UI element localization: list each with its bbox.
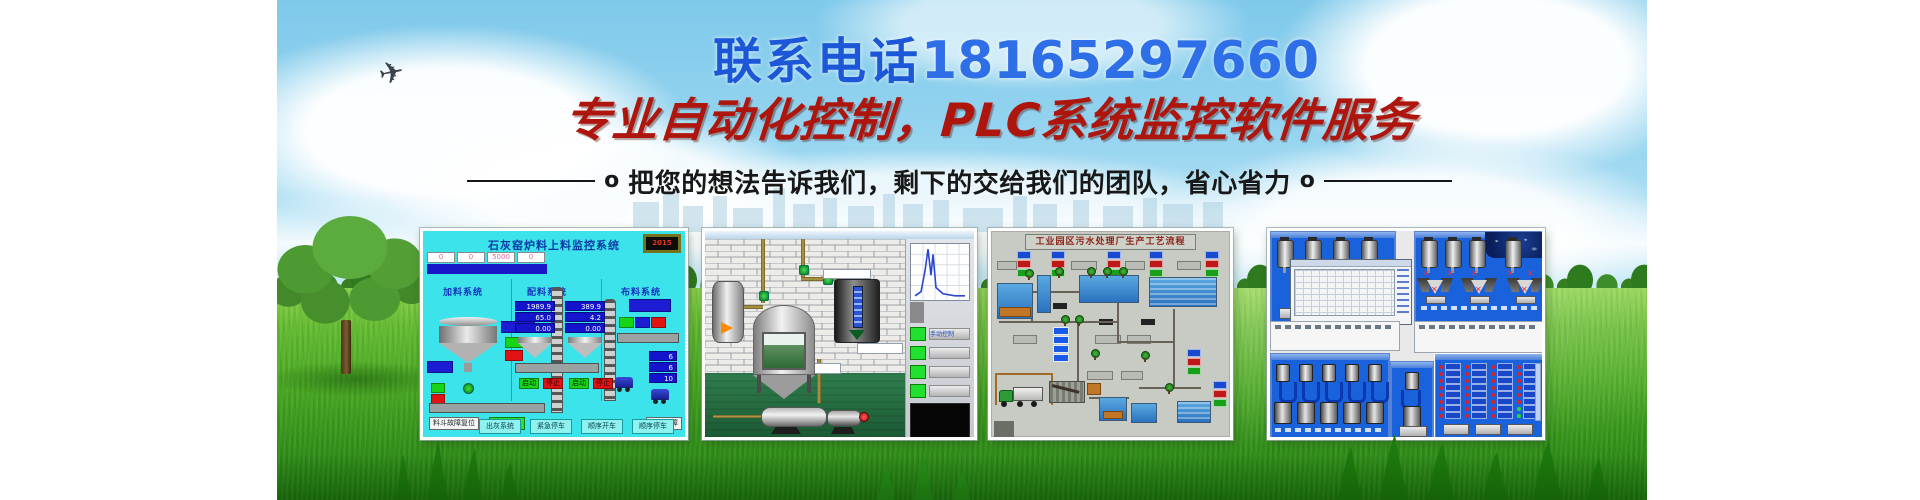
s1-label-box [427, 361, 453, 373]
tank-icon [1505, 240, 1522, 268]
phone-label: 联系电话 [713, 33, 921, 90]
s4-white-table [1414, 321, 1542, 353]
s1-value-cells: 0 0 5000 0 [427, 252, 545, 263]
tagline-dash-right [1324, 180, 1452, 182]
s1-indicator [651, 317, 666, 328]
s3-title: 工业园区污水处理厂生产工艺流程 [1025, 234, 1196, 250]
tree-icon [1103, 267, 1112, 276]
line-tag [1053, 303, 1067, 309]
s1-section-distribution: 布料系统 [621, 285, 661, 298]
param-column [1439, 363, 1461, 419]
s1-indicator [635, 317, 650, 328]
s2-wall-label [823, 269, 871, 279]
screenshot-mixer-hmi: 手动控制 [702, 228, 977, 440]
valve-icon [1141, 351, 1150, 360]
s1-trolley [615, 377, 633, 388]
s2-hopper-leg [807, 375, 811, 393]
pool [1177, 401, 1211, 423]
red-x-valve: ✕ [1447, 270, 1454, 278]
s1-valve [463, 383, 474, 394]
pipe-line [1117, 341, 1175, 343]
line-tag [1141, 319, 1155, 325]
label-chip [1013, 335, 1037, 344]
s1-label-box [629, 299, 671, 312]
s1-value-stack: 1989.965.00.00 [515, 301, 555, 334]
s2-control-row[interactable] [910, 384, 970, 398]
settling-cone [1103, 411, 1123, 419]
red-x-valve: ✕ [1527, 270, 1534, 278]
screenshot-lime-kiln-hmi: 石灰窑炉料上料监控系统 2015 0 0 5000 0 加料系统 配料系统 布料… [420, 228, 688, 440]
tagline-text: 把您的想法告诉我们，剩下的交给我们的团队，省心省力 [628, 163, 1291, 200]
s2-plant-view [705, 239, 911, 437]
s2-control-panel: 手动控制 [905, 239, 974, 437]
s1-funnel [568, 337, 602, 358]
tagline-bullet-left: o [604, 170, 619, 192]
s1-section-feeding: 加料系统 [443, 285, 483, 298]
tagline-bullet-right: o [1300, 170, 1315, 192]
screenshot-sewage-flow: 工业园区污水处理厂生产工艺流程 [988, 228, 1233, 440]
pipe [713, 415, 763, 418]
s2-wall-label [857, 343, 903, 354]
s1-clock-display: 2015 [643, 234, 681, 253]
tank-icon [1421, 240, 1438, 268]
s2-pump [761, 403, 871, 433]
valve-icon [799, 265, 809, 275]
pool-slope [999, 307, 1031, 317]
weigh-hopper: ✕ [1461, 278, 1497, 304]
indicator-stack [1205, 251, 1219, 278]
s1-status-bar [427, 264, 547, 274]
tree-icon [1087, 267, 1096, 276]
valve-icon [1061, 315, 1070, 324]
foreground-shade [277, 454, 1647, 500]
s2-hopper-leg [757, 375, 761, 393]
tree-canopy [277, 204, 427, 340]
indicator-stack [1187, 349, 1201, 376]
label-chip [1087, 371, 1113, 380]
s4-trend-grid-window [1290, 259, 1412, 325]
valve-icon [1075, 315, 1084, 324]
s2-trend-chart [910, 243, 970, 301]
weigh-hopper: ✕ [1507, 278, 1542, 304]
pipe-line [1117, 301, 1119, 343]
screenshot-blue-scada: ✕ ✕ ✕ ✕ ✕ ✕ ✕ ✕ [1267, 228, 1545, 440]
s1-indicator [619, 317, 634, 328]
s1-stop-chip: 停止 [593, 378, 613, 389]
blue-value-stack [1053, 327, 1069, 363]
phone-number: 18165297660 [921, 31, 1319, 91]
tagline: o 把您的想法告诉我们，剩下的交给我们的团队，省心省力 o [467, 164, 1452, 198]
label-chip [1121, 371, 1143, 380]
s1-stop-chip: 停止 [543, 378, 563, 389]
headline: 专业自动化控制，PLC系统监控软件服务 [563, 84, 1419, 150]
tagline-dash-left [467, 180, 595, 182]
s2-manual-control-label: 手动控制 [930, 329, 954, 338]
s1-fault-reset-button[interactable]: 料斗故障复位 [429, 417, 479, 430]
valve-icon [1091, 349, 1100, 358]
s1-conveyor [429, 403, 545, 413]
label-chip [1125, 261, 1145, 270]
pipe-line [999, 321, 1119, 323]
s1-conveyor [617, 333, 679, 343]
weigh-hopper: ✕ [1417, 278, 1453, 304]
s2-right-tank [834, 279, 880, 343]
tree-icon [1055, 267, 1064, 276]
pool [1131, 403, 1157, 423]
tree-icon [1025, 269, 1034, 278]
s1-start-chip: 启动 [569, 378, 589, 389]
label-chip [1177, 261, 1201, 270]
s1-value-stack: 389.94.20.00 [565, 301, 605, 334]
s4-window-topright: ✕ ✕ ✕ ✕ ✕ ✕ ✕ ✕ [1414, 231, 1542, 323]
pool [1037, 275, 1051, 313]
aeration-basin [1079, 275, 1139, 303]
s2-manual-control-row[interactable]: 手动控制 [910, 327, 970, 341]
label-chip [997, 261, 1017, 270]
screen-unit [1049, 381, 1085, 403]
s4-window-params [1434, 353, 1542, 437]
param-column [1491, 363, 1513, 419]
valve-icon [1165, 383, 1174, 392]
s2-control-row[interactable] [910, 365, 970, 379]
s1-indicator [431, 383, 445, 393]
red-x-valve: ✕ [1471, 270, 1478, 278]
s4-window-bottomleft [1270, 353, 1390, 437]
banner[interactable]: ✈ 联系电话18165297660 专业自动化控制，PLC系统监控软件服务 o … [277, 0, 1647, 500]
s1-conveyor [515, 363, 599, 373]
red-x-valve: ✕ [1507, 270, 1514, 278]
s1-trolley [651, 389, 669, 400]
tree-icon [1119, 267, 1128, 276]
clarifier [1149, 277, 1217, 307]
pipe-line [1077, 321, 1079, 385]
scrollbar[interactable] [1535, 363, 1541, 421]
s1-start-chip: 启动 [519, 378, 539, 389]
green-status-dot [1517, 414, 1521, 418]
indicator-stack [1149, 251, 1163, 278]
s4-window-bottomcenter [1390, 361, 1434, 437]
green-status-dot [1517, 407, 1521, 411]
status-strip [1421, 306, 1537, 310]
s2-control-row[interactable] [910, 346, 970, 360]
tank-icon [1445, 240, 1462, 268]
tank-icon [1469, 240, 1486, 268]
indicator-stack [1213, 381, 1227, 408]
s1-funnel [518, 337, 552, 358]
page-background: ✈ 联系电话18165297660 专业自动化控制，PLC系统监控软件服务 o … [0, 0, 1920, 500]
tree [277, 204, 427, 388]
s2-left-tank [712, 281, 744, 343]
green-button[interactable] [910, 327, 926, 341]
truck [999, 383, 1043, 407]
param-column [1465, 363, 1487, 419]
s2-mixing-hopper [753, 305, 815, 399]
phone-line: 联系电话18165297660 [713, 22, 1319, 93]
s1-value-stack: 6610 [649, 351, 677, 384]
pipe-line [1173, 309, 1175, 389]
orange-box [1087, 383, 1101, 395]
red-x-valve: ✕ [1423, 270, 1430, 278]
s2-toolbar [910, 303, 970, 322]
s4-white-table [1270, 321, 1400, 351]
valve-icon [759, 291, 769, 301]
